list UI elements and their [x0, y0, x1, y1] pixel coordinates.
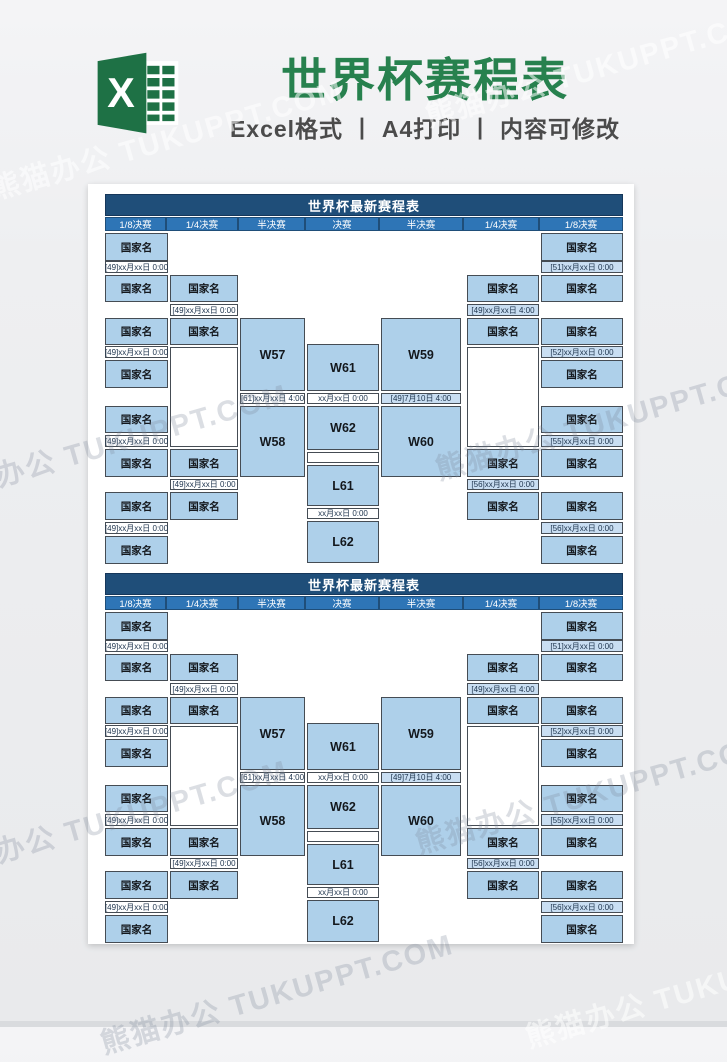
country-cell: 国家名 — [105, 612, 168, 640]
date-cell: [49]xx月xx日 0:00 — [105, 814, 168, 826]
country-cell: 国家名 — [467, 654, 539, 681]
country-cell: 国家名 — [105, 697, 168, 724]
country-cell: 国家名 — [170, 449, 238, 477]
schedule-table-2: 世界杯最新赛程表1/8决赛1/4决赛半决赛决赛半决赛1/4决赛1/8决赛国家名[… — [105, 573, 623, 944]
country-cell: 国家名 — [170, 828, 238, 856]
country-cell: 国家名 — [541, 612, 623, 640]
date-cell: [49]xx月xx日 0:00 — [105, 346, 168, 358]
date-cell: [49]xx月xx日 4:00 — [467, 304, 539, 316]
round-header: 半决赛 — [238, 596, 305, 610]
country-cell: 国家名 — [105, 406, 168, 433]
date-cell: [49]7月10日 4:00 — [381, 393, 461, 404]
country-cell: 国家名 — [467, 697, 539, 724]
country-cell: 国家名 — [541, 492, 623, 520]
empty-slot — [170, 347, 238, 447]
round-header: 半决赛 — [379, 596, 463, 610]
country-cell: 国家名 — [467, 318, 539, 345]
country-cell: 国家名 — [105, 360, 168, 388]
country-cell: 国家名 — [170, 318, 238, 345]
date-cell: [55]xx月xx日 0:00 — [541, 435, 623, 447]
date-cell: [49]xx月xx日 0:00 — [170, 304, 238, 316]
schedule-table-1: 世界杯最新赛程表1/8决赛1/4决赛半决赛决赛半决赛1/4决赛1/8决赛国家名[… — [105, 194, 623, 565]
round-header: 1/8决赛 — [539, 596, 623, 610]
date-cell: [56]xx月xx日 0:00 — [467, 858, 539, 869]
country-cell: 国家名 — [467, 275, 539, 302]
country-cell: 国家名 — [170, 654, 238, 681]
date-cell: [49]xx月xx日 0:00 — [105, 261, 168, 273]
country-cell: 国家名 — [467, 449, 539, 477]
match-cell: W59 — [381, 318, 461, 391]
match-cell: L61 — [307, 465, 379, 506]
round-header: 决赛 — [305, 217, 379, 231]
match-cell: W61 — [307, 723, 379, 770]
country-cell: 国家名 — [170, 492, 238, 520]
date-cell: [49]xx月xx日 0:00 — [170, 858, 238, 869]
date-cell: [49]xx月xx日 4:00 — [467, 683, 539, 695]
date-cell: xx月xx日 0:00 — [307, 887, 379, 898]
round-header: 1/4决赛 — [463, 596, 539, 610]
round-header: 1/8决赛 — [105, 217, 166, 231]
date-cell: [49]xx月xx日 0:00 — [170, 479, 238, 490]
country-cell: 国家名 — [541, 318, 623, 345]
empty-slot — [307, 452, 379, 463]
round-header: 1/4决赛 — [166, 217, 238, 231]
country-cell: 国家名 — [105, 536, 168, 564]
date-cell: [49]xx月xx日 0:00 — [105, 901, 168, 913]
match-cell: W61 — [307, 344, 379, 391]
country-cell: 国家名 — [105, 654, 168, 681]
match-cell: W60 — [381, 406, 461, 477]
country-cell: 国家名 — [105, 492, 168, 520]
round-header: 1/8决赛 — [105, 596, 166, 610]
round-header: 决赛 — [305, 596, 379, 610]
empty-slot — [307, 831, 379, 842]
country-cell: 国家名 — [541, 233, 623, 261]
match-cell: L61 — [307, 844, 379, 885]
country-cell: 国家名 — [105, 785, 168, 812]
excel-logo-letter: X — [107, 70, 135, 116]
country-cell: 国家名 — [170, 697, 238, 724]
country-cell: 国家名 — [105, 233, 168, 261]
country-cell: 国家名 — [105, 275, 168, 302]
match-cell: W60 — [381, 785, 461, 856]
country-cell: 国家名 — [541, 915, 623, 943]
empty-slot — [467, 347, 539, 447]
match-cell: W58 — [240, 406, 305, 477]
date-cell: [55]xx月xx日 0:00 — [541, 814, 623, 826]
date-cell: xx月xx日 0:00 — [307, 508, 379, 519]
round-header: 1/4决赛 — [166, 596, 238, 610]
match-cell: L62 — [307, 521, 379, 563]
country-cell: 国家名 — [467, 492, 539, 520]
country-cell: 国家名 — [105, 449, 168, 477]
match-cell: W59 — [381, 697, 461, 770]
date-cell: [49]7月10日 4:00 — [381, 772, 461, 783]
country-cell: 国家名 — [105, 318, 168, 345]
date-cell: [52]xx月xx日 0:00 — [541, 725, 623, 737]
bottom-edge-strip — [0, 1021, 727, 1027]
country-cell: 国家名 — [105, 828, 168, 856]
country-cell: 国家名 — [467, 828, 539, 856]
country-cell: 国家名 — [541, 785, 623, 812]
excel-logo-icon: X — [92, 48, 182, 138]
country-cell: 国家名 — [541, 449, 623, 477]
empty-slot — [467, 726, 539, 826]
date-cell: [51]xx月xx日 0:00 — [541, 640, 623, 652]
banner-title: 世界杯赛程表 — [195, 44, 655, 110]
country-cell: 国家名 — [541, 360, 623, 388]
country-cell: 国家名 — [105, 915, 168, 943]
country-cell: 国家名 — [541, 275, 623, 302]
country-cell: 国家名 — [541, 871, 623, 899]
country-cell: 国家名 — [541, 828, 623, 856]
round-header: 1/4决赛 — [463, 217, 539, 231]
country-cell: 国家名 — [105, 871, 168, 899]
date-cell: [61]xx月xx日 4:00 — [240, 772, 305, 783]
table-title: 世界杯最新赛程表 — [105, 573, 623, 595]
round-header: 半决赛 — [379, 217, 463, 231]
date-cell: [56]xx月xx日 0:00 — [467, 479, 539, 490]
match-cell: W57 — [240, 318, 305, 391]
country-cell: 国家名 — [541, 739, 623, 767]
date-cell: [51]xx月xx日 0:00 — [541, 261, 623, 273]
country-cell: 国家名 — [541, 654, 623, 681]
date-cell: xx月xx日 0:00 — [307, 393, 379, 404]
empty-slot — [170, 726, 238, 826]
country-cell: 国家名 — [541, 697, 623, 724]
match-cell: W57 — [240, 697, 305, 770]
match-cell: L62 — [307, 900, 379, 942]
country-cell: 国家名 — [541, 536, 623, 564]
date-cell: [49]xx月xx日 0:00 — [105, 640, 168, 652]
table-title: 世界杯最新赛程表 — [105, 194, 623, 216]
country-cell: 国家名 — [170, 871, 238, 899]
round-header: 1/8决赛 — [539, 217, 623, 231]
round-header: 半决赛 — [238, 217, 305, 231]
date-cell: [49]xx月xx日 0:00 — [105, 725, 168, 737]
country-cell: 国家名 — [467, 871, 539, 899]
date-cell: [49]xx月xx日 0:00 — [105, 522, 168, 534]
match-cell: W62 — [307, 406, 379, 450]
promo-banner: X 世界杯赛程表 Excel格式 丨 A4打印 丨 内容可修改 — [0, 0, 727, 184]
country-cell: 国家名 — [541, 406, 623, 433]
date-cell: [52]xx月xx日 0:00 — [541, 346, 623, 358]
date-cell: [56]xx月xx日 0:00 — [541, 522, 623, 534]
match-cell: W62 — [307, 785, 379, 829]
match-cell: W58 — [240, 785, 305, 856]
date-cell: xx月xx日 0:00 — [307, 772, 379, 783]
country-cell: 国家名 — [170, 275, 238, 302]
document-page: 世界杯最新赛程表1/8决赛1/4决赛半决赛决赛半决赛1/4决赛1/8决赛国家名[… — [88, 184, 634, 944]
date-cell: [61]xx月xx日 4:00 — [240, 393, 305, 404]
banner-subtitle: Excel格式 丨 A4打印 丨 内容可修改 — [195, 110, 655, 144]
date-cell: [49]xx月xx日 0:00 — [170, 683, 238, 695]
date-cell: [56]xx月xx日 0:00 — [541, 901, 623, 913]
country-cell: 国家名 — [105, 739, 168, 767]
date-cell: [49]xx月xx日 0:00 — [105, 435, 168, 447]
